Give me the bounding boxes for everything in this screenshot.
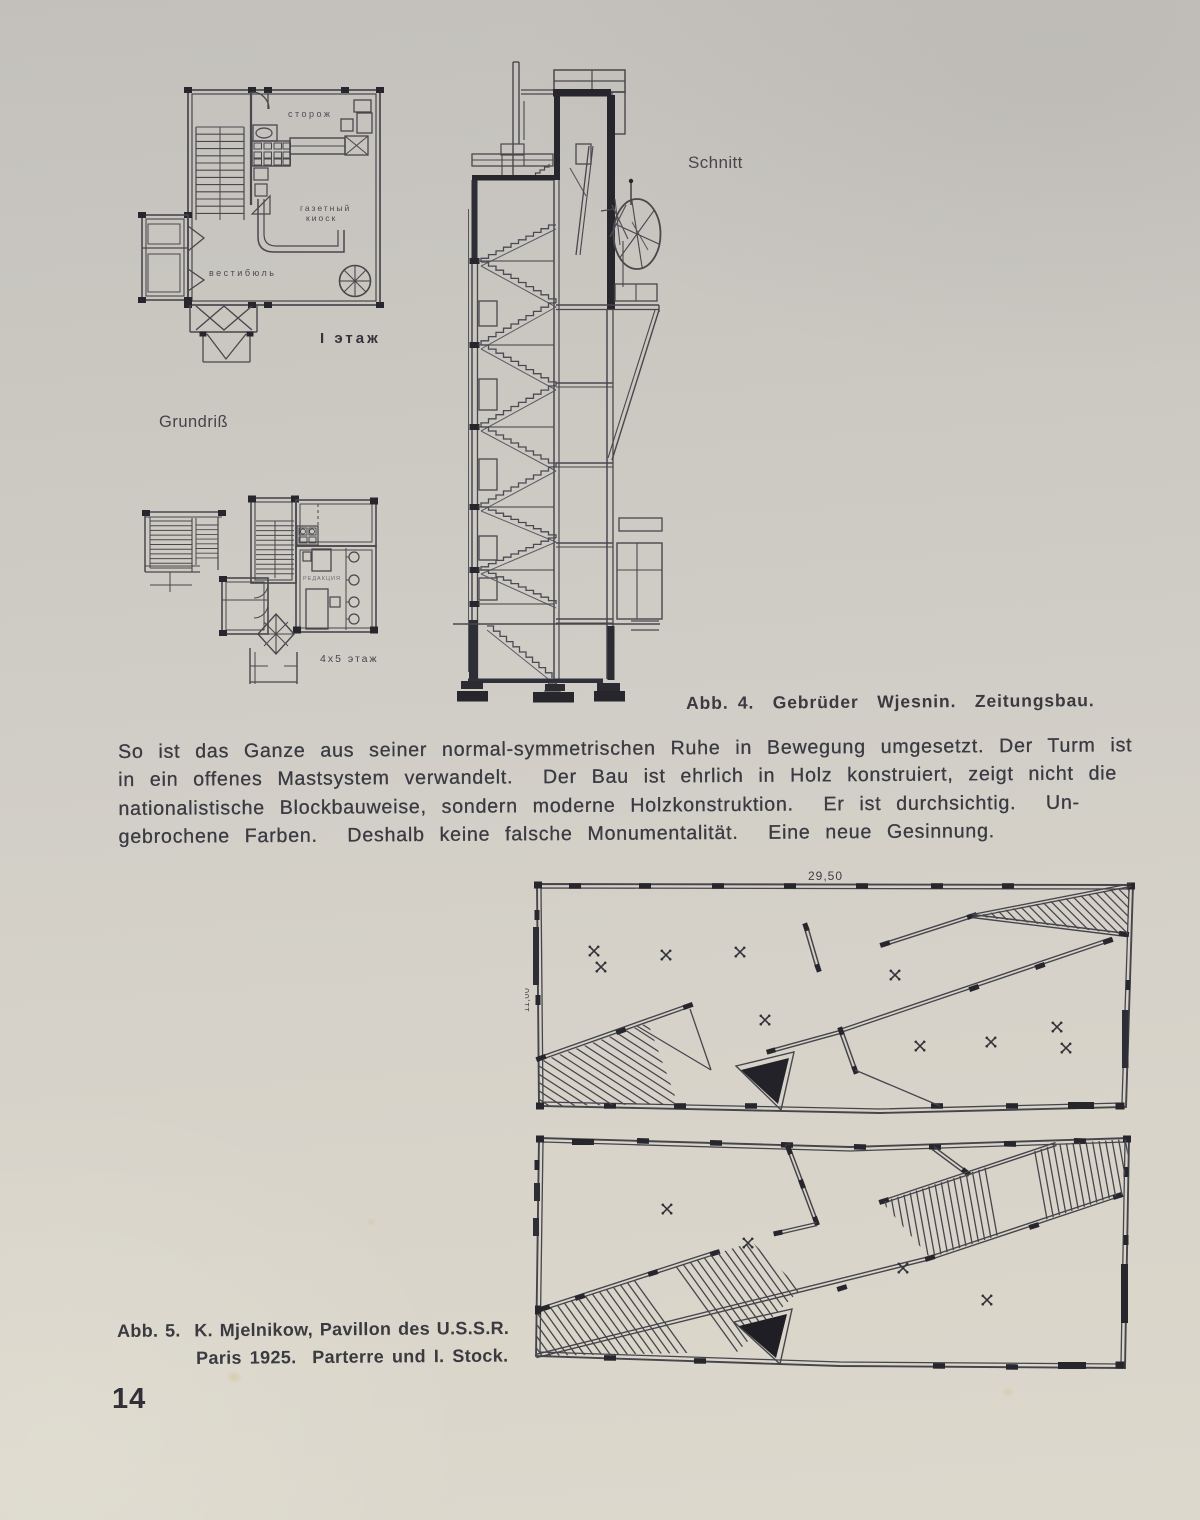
svg-text:РЕДАКЦИЯ: РЕДАКЦИЯ [303,576,341,582]
svg-text:29,50: 29,50 [808,869,843,883]
svg-text:4х5 этаж: 4х5 этаж [320,653,379,665]
svg-text:сторож: сторож [288,109,332,119]
svg-text:газетный: газетный [300,203,351,213]
svg-text:вестибюль: вестибюль [209,268,276,278]
svg-text:киоск: киоск [306,213,337,223]
svg-text:11,00: 11,00 [525,988,531,1012]
svg-text:I этаж: I этаж [320,330,381,347]
